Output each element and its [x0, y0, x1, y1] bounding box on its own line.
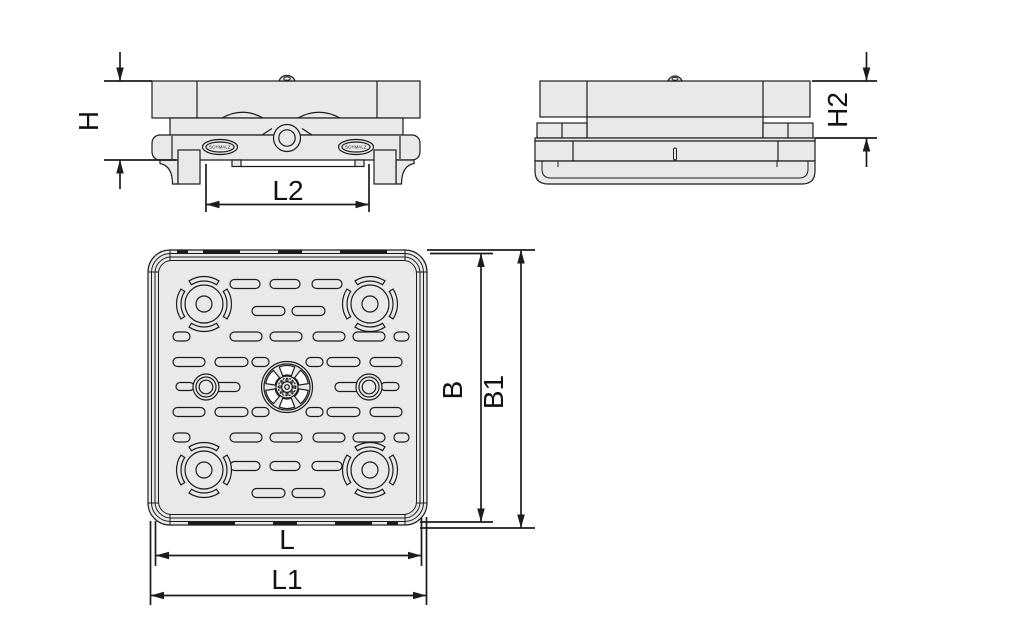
- dim-label-l: L: [279, 524, 295, 555]
- technical-drawing-canvas: SCHMALZ SCHMALZ: [0, 0, 1010, 628]
- dim-label-b1: B1: [478, 375, 509, 409]
- dim-label-l2: L2: [272, 175, 303, 206]
- badge-text: SCHMALZ: [345, 145, 367, 150]
- seal-notch: [232, 160, 241, 167]
- right-foot-flange: [396, 160, 414, 184]
- dim-label-h2: H2: [822, 92, 853, 128]
- center-boss: [274, 125, 301, 152]
- dimension-H: H: [73, 52, 176, 189]
- center-hub: [262, 362, 313, 413]
- badge-text: SCHMALZ: [209, 145, 231, 150]
- dim-label-b: B: [437, 381, 468, 400]
- brand-badge-left: SCHMALZ: [203, 140, 238, 155]
- right-foot: [374, 150, 396, 184]
- vacuum-plate-drawing: SCHMALZ SCHMALZ: [0, 0, 1010, 628]
- dimension-H2: H2: [812, 52, 877, 167]
- side-middle-tier: [587, 117, 763, 138]
- side-top-block: [540, 81, 810, 117]
- side-hole-right: [356, 374, 382, 400]
- top-view: [148, 250, 427, 525]
- dimension-L2: L2: [206, 164, 369, 212]
- dim-label-l1: L1: [271, 564, 302, 595]
- left-foot: [178, 150, 200, 184]
- front-top-block: [152, 81, 420, 118]
- front-view: SCHMALZ SCHMALZ: [152, 76, 420, 185]
- seal-notch: [355, 160, 364, 167]
- brand-badge-right: SCHMALZ: [339, 140, 374, 155]
- dim-label-h: H: [73, 111, 104, 131]
- side-lower-body: [535, 141, 815, 161]
- side-hole-left: [193, 374, 219, 400]
- left-foot-flange: [160, 160, 178, 184]
- side-view: [535, 76, 815, 184]
- side-seal-plate: [535, 161, 815, 184]
